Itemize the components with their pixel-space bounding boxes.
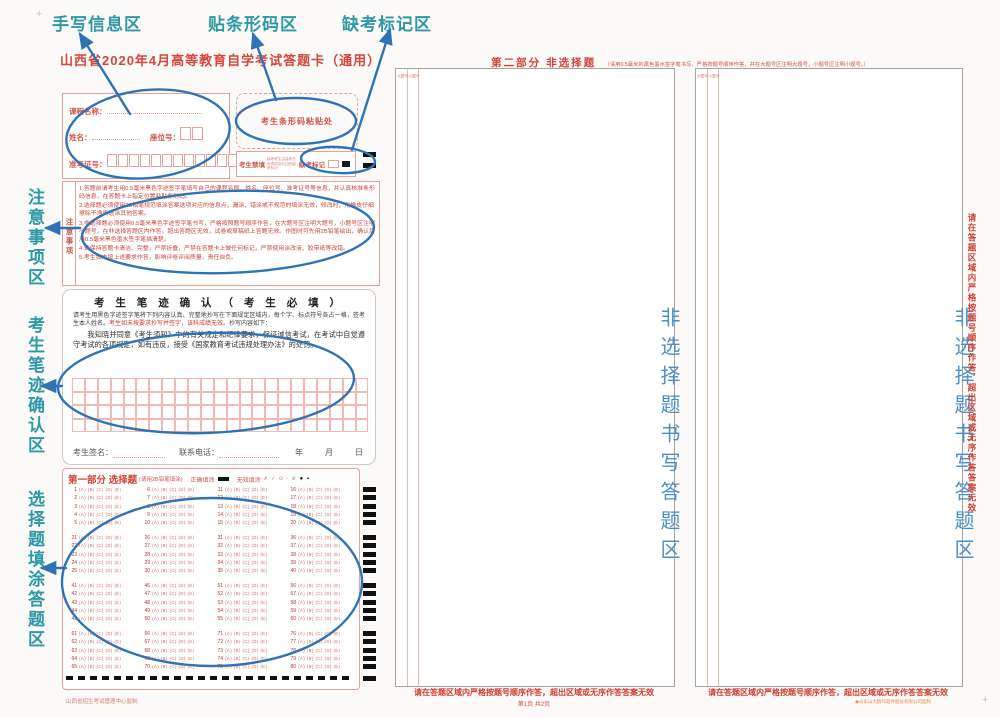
copy-grid-cell[interactable] (240, 392, 253, 406)
bubble-option-a[interactable]: A (298, 592, 305, 596)
bubble-option-c[interactable]: C (170, 592, 177, 596)
bubble-option-c[interactable]: C (316, 513, 323, 517)
bubble-option-a[interactable]: A (79, 584, 86, 588)
bubble-option-a[interactable]: A (225, 536, 232, 540)
bubble-option-b[interactable]: B (307, 665, 314, 669)
copy-grid-cell[interactable] (188, 392, 201, 406)
bubble-option-a[interactable]: A (152, 584, 159, 588)
bubble-option-b[interactable]: B (234, 488, 241, 492)
bubble-option-c[interactable]: C (316, 553, 323, 557)
bubble-option-d[interactable]: D (251, 553, 258, 557)
bubble-option-c[interactable]: C (316, 569, 323, 573)
bubble-option-e[interactable]: E (114, 657, 121, 661)
bubble-option-e[interactable]: E (187, 536, 194, 540)
bubble-option-a[interactable]: A (298, 601, 305, 605)
copy-grid-cell[interactable] (265, 378, 278, 392)
bubble-option-a[interactable]: A (79, 640, 86, 644)
bubble-option-b[interactable]: B (88, 505, 95, 509)
bubble-option-d[interactable]: D (251, 617, 258, 621)
bubble-option-a[interactable]: A (225, 609, 232, 613)
bubble-option-c[interactable]: C (170, 640, 177, 644)
bubble-option-a[interactable]: A (298, 584, 305, 588)
copy-grid-cell[interactable] (124, 405, 137, 419)
bubble-option-c[interactable]: C (316, 649, 323, 653)
bubble-option-b[interactable]: B (307, 592, 314, 596)
bubble-option-a[interactable]: A (225, 617, 232, 621)
bubble-option-a[interactable]: A (298, 649, 305, 653)
copy-grid-cell[interactable] (85, 378, 98, 392)
bubble-option-b[interactable]: B (161, 505, 168, 509)
bubble-option-b[interactable]: B (161, 584, 168, 588)
bubble-option-b[interactable]: B (234, 609, 241, 613)
bubble-option-c[interactable]: C (243, 544, 250, 548)
copy-grid-cell[interactable] (72, 392, 85, 406)
bubble-option-d[interactable]: D (178, 649, 185, 653)
bubble-option-a[interactable]: A (225, 632, 232, 636)
copy-grid-cell[interactable] (227, 419, 240, 433)
bubble-option-e[interactable]: E (187, 496, 194, 500)
admission-digit-box[interactable] (151, 154, 161, 167)
bubble-option-b[interactable]: B (88, 665, 95, 669)
copy-grid-cell[interactable] (356, 392, 369, 406)
copy-grid-cell[interactable] (330, 378, 343, 392)
bubble-option-b[interactable]: B (88, 657, 95, 661)
copy-grid-cell[interactable] (227, 392, 240, 406)
copy-grid-cell[interactable] (149, 378, 162, 392)
bubble-option-d[interactable]: D (251, 521, 258, 525)
course-name-field[interactable] (107, 104, 202, 114)
bubble-option-e[interactable]: E (260, 584, 267, 588)
bubble-option-e[interactable]: E (187, 649, 194, 653)
bubble-option-b[interactable]: B (161, 521, 168, 525)
bubble-option-e[interactable]: E (187, 553, 194, 557)
bubble-option-a[interactable]: A (152, 657, 159, 661)
copy-grid-cell[interactable] (265, 419, 278, 433)
bubble-option-e[interactable]: E (114, 617, 121, 621)
bubble-option-b[interactable]: B (234, 536, 241, 540)
bubble-option-e[interactable]: E (114, 505, 121, 509)
bubble-option-e[interactable]: E (187, 632, 194, 636)
bubble-option-b[interactable]: B (161, 496, 168, 500)
bubble-option-c[interactable]: C (170, 561, 177, 565)
bubble-option-c[interactable]: C (170, 617, 177, 621)
bubble-option-e[interactable]: E (114, 521, 121, 525)
bubble-option-e[interactable]: E (333, 553, 340, 557)
bubble-option-b[interactable]: B (307, 505, 314, 509)
bubble-option-c[interactable]: C (316, 521, 323, 525)
barcode-paste-box[interactable]: 考生条形码粘贴处 (236, 93, 358, 149)
bubble-option-d[interactable]: D (178, 609, 185, 613)
bubble-option-b[interactable]: B (234, 649, 241, 653)
bubble-option-b[interactable]: B (88, 601, 95, 605)
bubble-option-d[interactable]: D (324, 609, 331, 613)
bubble-option-e[interactable]: E (187, 513, 194, 517)
bubble-option-e[interactable]: E (187, 665, 194, 669)
bubble-option-b[interactable]: B (88, 513, 95, 517)
bubble-option-a[interactable]: A (152, 601, 159, 605)
bubble-option-e[interactable]: E (333, 601, 340, 605)
bubble-option-d[interactable]: D (178, 553, 185, 557)
copy-grid-cell[interactable] (175, 405, 188, 419)
bubble-option-a[interactable]: A (225, 657, 232, 661)
bubble-option-a[interactable]: A (79, 561, 86, 565)
bubble-option-d[interactable]: D (251, 665, 258, 669)
absent-mark-bubble[interactable] (328, 160, 339, 168)
bubble-option-b[interactable]: B (307, 496, 314, 500)
bubble-option-d[interactable]: D (324, 584, 331, 588)
bubble-option-b[interactable]: B (161, 632, 168, 636)
copy-grid-cell[interactable] (252, 419, 265, 433)
copy-grid-cell[interactable] (356, 419, 369, 433)
bubble-option-c[interactable]: C (97, 513, 104, 517)
bubble-option-c[interactable]: C (97, 505, 104, 509)
bubble-option-b[interactable]: B (161, 657, 168, 661)
bubble-option-d[interactable]: D (251, 561, 258, 565)
copy-grid-cell[interactable] (175, 419, 188, 433)
bubble-option-e[interactable]: E (187, 505, 194, 509)
copy-grid-cell[interactable] (343, 405, 356, 419)
bubble-option-a[interactable]: A (298, 505, 305, 509)
copy-grid-cell[interactable] (72, 378, 85, 392)
bubble-option-a[interactable]: A (79, 496, 86, 500)
bubble-option-c[interactable]: C (97, 536, 104, 540)
bubble-option-e[interactable]: E (333, 561, 340, 565)
bubble-option-e[interactable]: E (114, 609, 121, 613)
bubble-option-a[interactable]: A (298, 569, 305, 573)
bubble-option-b[interactable]: B (307, 584, 314, 588)
admission-digit-box[interactable] (107, 154, 117, 167)
bubble-option-e[interactable]: E (333, 649, 340, 653)
bubble-option-e[interactable]: E (333, 505, 340, 509)
admission-digit-box[interactable] (206, 154, 216, 167)
bubble-option-a[interactable]: A (79, 617, 86, 621)
copy-grid-cell[interactable] (227, 405, 240, 419)
bubble-option-d[interactable]: D (324, 569, 331, 573)
bubble-option-a[interactable]: A (225, 544, 232, 548)
bubble-option-e[interactable]: E (114, 632, 121, 636)
bubble-option-c[interactable]: C (316, 536, 323, 540)
bubble-option-c[interactable]: C (243, 584, 250, 588)
bubble-option-e[interactable]: E (187, 617, 194, 621)
copy-grid-cell[interactable] (85, 392, 98, 406)
bubble-option-c[interactable]: C (97, 665, 104, 669)
bubble-option-d[interactable]: D (105, 665, 112, 669)
bubble-option-b[interactable]: B (88, 649, 95, 653)
bubble-option-a[interactable]: A (225, 649, 232, 653)
bubble-option-d[interactable]: D (324, 561, 331, 565)
copy-grid-cell[interactable] (72, 405, 85, 419)
bubble-option-d[interactable]: D (178, 536, 185, 540)
bubble-option-a[interactable]: A (225, 584, 232, 588)
bubble-option-e[interactable]: E (333, 584, 340, 588)
bubble-option-d[interactable]: D (105, 544, 112, 548)
bubble-option-e[interactable]: E (260, 592, 267, 596)
bubble-option-b[interactable]: B (234, 544, 241, 548)
bubble-option-d[interactable]: D (324, 553, 331, 557)
bubble-option-e[interactable]: E (333, 569, 340, 573)
bubble-option-a[interactable]: A (152, 617, 159, 621)
bubble-option-a[interactable]: A (79, 592, 86, 596)
bubble-option-c[interactable]: C (97, 521, 104, 525)
bubble-option-a[interactable]: A (225, 505, 232, 509)
bubble-option-a[interactable]: A (225, 601, 232, 605)
bubble-option-a[interactable]: A (152, 569, 159, 573)
bubble-option-a[interactable]: A (152, 592, 159, 596)
bubble-option-a[interactable]: A (152, 640, 159, 644)
bubble-option-b[interactable]: B (307, 513, 314, 517)
bubble-option-e[interactable]: E (260, 513, 267, 517)
copy-grid-cell[interactable] (136, 419, 149, 433)
copy-grid-cell[interactable] (98, 419, 111, 433)
copy-grid-cell[interactable] (188, 405, 201, 419)
bubble-option-d[interactable]: D (251, 569, 258, 573)
bubble-option-e[interactable]: E (333, 544, 340, 548)
bubble-option-b[interactable]: B (234, 665, 241, 669)
bubble-option-e[interactable]: E (114, 665, 121, 669)
bubble-option-a[interactable]: A (298, 553, 305, 557)
bubble-option-d[interactable]: D (178, 544, 185, 548)
bubble-option-e[interactable]: E (333, 665, 340, 669)
bubble-option-c[interactable]: C (243, 521, 250, 525)
bubble-option-d[interactable]: D (105, 488, 112, 492)
bubble-option-b[interactable]: B (161, 553, 168, 557)
bubble-option-a[interactable]: A (225, 488, 232, 492)
copy-grid-cell[interactable] (278, 405, 291, 419)
bubble-option-d[interactable]: D (105, 657, 112, 661)
bubble-option-e[interactable]: E (114, 496, 121, 500)
bubble-option-b[interactable]: B (307, 488, 314, 492)
bubble-option-b[interactable]: B (161, 649, 168, 653)
bubble-option-b[interactable]: B (234, 657, 241, 661)
copy-grid-cell[interactable] (162, 405, 175, 419)
copy-grid-cell[interactable] (162, 419, 175, 433)
bubble-option-e[interactable]: E (187, 640, 194, 644)
bubble-option-e[interactable]: E (187, 569, 194, 573)
copy-grid-cell[interactable] (162, 378, 175, 392)
copy-grid-cell[interactable] (188, 378, 201, 392)
bubble-option-b[interactable]: B (307, 536, 314, 540)
bubble-option-a[interactable]: A (79, 544, 86, 548)
bubble-option-d[interactable]: D (105, 536, 112, 540)
bubble-option-a[interactable]: A (225, 665, 232, 669)
bubble-option-d[interactable]: D (251, 513, 258, 517)
copy-grid-cell[interactable] (149, 392, 162, 406)
bubble-option-c[interactable]: C (97, 544, 104, 548)
copy-grid-cell[interactable] (252, 392, 265, 406)
bubble-option-a[interactable]: A (225, 496, 232, 500)
bubble-option-a[interactable]: A (298, 521, 305, 525)
bubble-option-d[interactable]: D (324, 617, 331, 621)
bubble-option-d[interactable]: D (251, 488, 258, 492)
bubble-option-d[interactable]: D (324, 505, 331, 509)
copy-grid-cell[interactable] (356, 378, 369, 392)
bubble-option-a[interactable]: A (298, 488, 305, 492)
bubble-option-c[interactable]: C (170, 665, 177, 669)
bubble-option-c[interactable]: C (170, 584, 177, 588)
bubble-option-a[interactable]: A (298, 665, 305, 669)
bubble-option-c[interactable]: C (243, 553, 250, 557)
bubble-option-d[interactable]: D (178, 513, 185, 517)
copy-grid-cell[interactable] (291, 378, 304, 392)
bubble-option-a[interactable]: A (79, 536, 86, 540)
bubble-option-d[interactable]: D (251, 601, 258, 605)
copy-grid-cell[interactable] (304, 392, 317, 406)
bubble-option-b[interactable]: B (88, 640, 95, 644)
copy-grid-cell[interactable] (162, 392, 175, 406)
copy-grid-cell[interactable] (124, 419, 137, 433)
bubble-option-b[interactable]: B (234, 569, 241, 573)
bubble-option-c[interactable]: C (243, 513, 250, 517)
copy-grid-cell[interactable] (304, 378, 317, 392)
bubble-option-b[interactable]: B (307, 601, 314, 605)
copy-grid-cell[interactable] (330, 405, 343, 419)
bubble-option-c[interactable]: C (316, 601, 323, 605)
bubble-option-b[interactable]: B (161, 561, 168, 565)
bubble-option-e[interactable]: E (260, 609, 267, 613)
bubble-option-d[interactable]: D (178, 632, 185, 636)
bubble-option-e[interactable]: E (333, 536, 340, 540)
bubble-option-a[interactable]: A (152, 544, 159, 548)
bubble-option-c[interactable]: C (316, 665, 323, 669)
bubble-option-e[interactable]: E (187, 592, 194, 596)
copy-grid-cell[interactable] (98, 378, 111, 392)
phone-field[interactable] (219, 447, 279, 458)
bubble-option-c[interactable]: C (243, 657, 250, 661)
bubble-option-a[interactable]: A (79, 601, 86, 605)
bubble-option-c[interactable]: C (316, 488, 323, 492)
copy-grid-cell[interactable] (317, 392, 330, 406)
bubble-option-a[interactable]: A (298, 561, 305, 565)
bubble-option-c[interactable]: C (97, 553, 104, 557)
bubble-option-b[interactable]: B (88, 488, 95, 492)
bubble-option-d[interactable]: D (105, 601, 112, 605)
admission-digit-box[interactable] (129, 154, 139, 167)
bubble-option-e[interactable]: E (333, 521, 340, 525)
bubble-option-d[interactable]: D (251, 505, 258, 509)
bubble-option-a[interactable]: A (152, 553, 159, 557)
bubble-option-e[interactable]: E (260, 505, 267, 509)
copy-grid-cell[interactable] (265, 392, 278, 406)
bubble-option-d[interactable]: D (105, 513, 112, 517)
bubble-option-c[interactable]: C (97, 617, 104, 621)
copy-grid-cell[interactable] (227, 378, 240, 392)
bubble-option-c[interactable]: C (243, 617, 250, 621)
bubble-option-a[interactable]: A (79, 513, 86, 517)
bubble-option-a[interactable]: A (79, 521, 86, 525)
copy-grid-cell[interactable] (304, 419, 317, 433)
admission-digit-box[interactable] (217, 154, 227, 167)
bubble-option-d[interactable]: D (324, 640, 331, 644)
bubble-option-b[interactable]: B (234, 617, 241, 621)
copy-grid-cell[interactable] (136, 405, 149, 419)
bubble-option-a[interactable]: A (152, 561, 159, 565)
copy-grid-cell[interactable] (175, 392, 188, 406)
bubble-option-d[interactable]: D (178, 561, 185, 565)
admission-digit-box[interactable] (195, 154, 205, 167)
bubble-option-d[interactable]: D (178, 569, 185, 573)
bubble-option-b[interactable]: B (161, 544, 168, 548)
admission-digit-box[interactable] (140, 154, 150, 167)
bubble-option-b[interactable]: B (161, 665, 168, 669)
bubble-option-c[interactable]: C (316, 584, 323, 588)
bubble-option-c[interactable]: C (170, 649, 177, 653)
bubble-option-a[interactable]: A (298, 609, 305, 613)
bubble-option-e[interactable]: E (260, 553, 267, 557)
bubble-option-e[interactable]: E (260, 496, 267, 500)
bubble-option-e[interactable]: E (114, 536, 121, 540)
bubble-option-b[interactable]: B (88, 569, 95, 573)
bubble-option-e[interactable]: E (187, 601, 194, 605)
copy-grid-cell[interactable] (214, 405, 227, 419)
bubble-option-c[interactable]: C (170, 496, 177, 500)
bubble-option-b[interactable]: B (234, 561, 241, 565)
bubble-option-e[interactable]: E (114, 640, 121, 644)
copy-grid-cell[interactable] (240, 405, 253, 419)
bubble-option-d[interactable]: D (105, 553, 112, 557)
copy-grid-cell[interactable] (214, 378, 227, 392)
bubble-option-d[interactable]: D (324, 601, 331, 605)
bubble-option-d[interactable]: D (105, 592, 112, 596)
bubble-option-e[interactable]: E (333, 640, 340, 644)
bubble-option-e[interactable]: E (333, 496, 340, 500)
bubble-option-c[interactable]: C (170, 657, 177, 661)
copy-grid-cell[interactable] (278, 378, 291, 392)
bubble-option-b[interactable]: B (307, 617, 314, 621)
bubble-option-d[interactable]: D (105, 640, 112, 644)
bubble-option-a[interactable]: A (298, 536, 305, 540)
bubble-option-e[interactable]: E (187, 584, 194, 588)
bubble-option-d[interactable]: D (251, 544, 258, 548)
bubble-option-d[interactable]: D (251, 496, 258, 500)
bubble-option-e[interactable]: E (260, 640, 267, 644)
bubble-option-a[interactable]: A (152, 496, 159, 500)
bubble-option-c[interactable]: C (243, 569, 250, 573)
bubble-option-a[interactable]: A (79, 609, 86, 613)
bubble-option-b[interactable]: B (307, 521, 314, 525)
bubble-option-a[interactable]: A (152, 632, 159, 636)
bubble-option-e[interactable]: E (114, 544, 121, 548)
bubble-option-e[interactable]: E (260, 657, 267, 661)
bubble-option-d[interactable]: D (324, 544, 331, 548)
bubble-option-c[interactable]: C (243, 488, 250, 492)
bubble-option-d[interactable]: D (251, 592, 258, 596)
copy-grid-cell[interactable] (85, 405, 98, 419)
admission-digit-box[interactable] (184, 154, 194, 167)
bubble-option-e[interactable]: E (260, 488, 267, 492)
bubble-option-c[interactable]: C (97, 640, 104, 644)
bubble-option-b[interactable]: B (234, 513, 241, 517)
copy-grid-cell[interactable] (111, 419, 124, 433)
bubble-option-b[interactable]: B (307, 544, 314, 548)
copy-grid-cell[interactable] (291, 392, 304, 406)
bubble-option-b[interactable]: B (234, 505, 241, 509)
bubble-option-e[interactable]: E (333, 632, 340, 636)
bubble-option-b[interactable]: B (234, 601, 241, 605)
bubble-option-b[interactable]: B (161, 488, 168, 492)
bubble-option-b[interactable]: B (88, 584, 95, 588)
bubble-option-b[interactable]: B (88, 617, 95, 621)
bubble-option-d[interactable]: D (178, 640, 185, 644)
bubble-option-d[interactable]: D (105, 649, 112, 653)
bubble-option-d[interactable]: D (324, 592, 331, 596)
bubble-option-c[interactable]: C (97, 561, 104, 565)
bubble-option-c[interactable]: C (170, 569, 177, 573)
bubble-option-d[interactable]: D (251, 640, 258, 644)
bubble-option-e[interactable]: E (187, 657, 194, 661)
bubble-option-b[interactable]: B (161, 640, 168, 644)
bubble-option-e[interactable]: E (187, 544, 194, 548)
bubble-option-a[interactable]: A (152, 505, 159, 509)
